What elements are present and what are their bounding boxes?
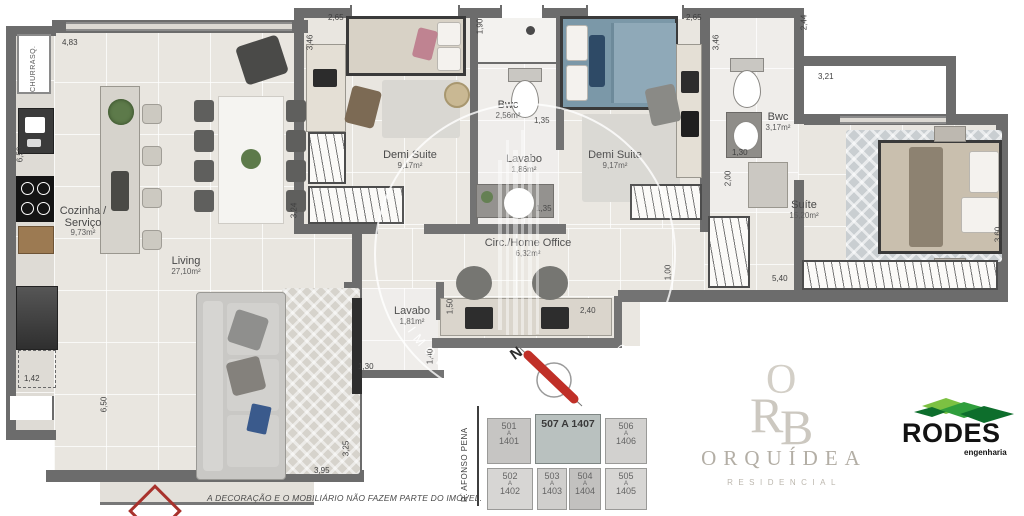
hall-wardrobe (708, 216, 750, 288)
demi1-wardrobe-side (308, 132, 346, 184)
dining-chair (286, 130, 306, 152)
dim-label: 1,35 (534, 116, 550, 125)
rodes-logo: RODES engenharia (902, 398, 1024, 460)
table-plant-icon (241, 149, 261, 169)
room-label-living: Living27,10m² (150, 256, 222, 276)
window-bwc1 (500, 5, 544, 19)
window-service-low (8, 396, 54, 420)
wall-nook-right (614, 296, 622, 348)
watermark-streak (498, 160, 502, 330)
dim-label: 1,00 (663, 265, 672, 281)
wall-demi1-bottom-a (294, 224, 378, 234)
floorplan-canvas: CHURRASQ. (0, 0, 1024, 516)
orquidea-monogram-r: R (750, 386, 783, 444)
dim-label: 3,25 (341, 441, 350, 457)
demi1-wardrobe-bottom (308, 186, 404, 224)
room-label-bwc1: Bwc2,56m² (480, 100, 536, 120)
office-chair (456, 266, 492, 300)
dim-label: 2,65 (328, 13, 344, 22)
watermark-streak (536, 172, 539, 334)
rodes-name: RODES (902, 418, 1001, 449)
fridge (16, 286, 58, 350)
shower-head-icon (526, 26, 535, 35)
dining-chair (286, 160, 306, 182)
dim-label: 1,50 (445, 299, 454, 315)
dim-label: 1,42 (24, 374, 40, 383)
keyplan-unit-502: 502A1402 (487, 468, 533, 510)
dim-label: 2,44 (799, 15, 808, 31)
dim-label: 3,21 (818, 72, 834, 81)
plant-icon (108, 99, 134, 125)
dim-label: 5,40 (772, 274, 788, 283)
compass-n-label: N (507, 343, 526, 363)
watermark-streak (528, 155, 532, 335)
demi1-desk (306, 44, 346, 132)
dim-label: 1,30 (732, 148, 748, 157)
window-suite (840, 116, 946, 124)
island-object (111, 171, 129, 211)
watermark-streak (521, 130, 524, 335)
window-living-top (66, 22, 292, 31)
keyplan-unit-507-highlight: 507 A 1407 (535, 414, 601, 464)
demi1-bed (346, 16, 466, 76)
wall-bwc2-top (700, 8, 802, 18)
suite-nightstand (934, 126, 966, 142)
keyplan-unit-506: 506A1406 (605, 418, 647, 464)
laptop-icon (541, 307, 569, 329)
watermark-streak (513, 150, 518, 335)
wall-bottom-right-long (618, 290, 1008, 302)
dim-label: 2,40 (580, 306, 596, 315)
keyplan-unit-505: 505A1405 (605, 468, 647, 510)
keyplan-street-label: R. AFONSO PENA (460, 427, 469, 502)
orquidea-tagline: RESIDENCIAL (688, 478, 880, 487)
dim-label: 1,30 (358, 362, 374, 371)
room-label-suite: Suíte15,20m² (770, 200, 838, 220)
dim-label: 6,50 (15, 147, 24, 163)
sofa (196, 292, 286, 480)
stool (142, 104, 162, 124)
wall-left-outer (6, 26, 16, 440)
dim-label: 3,46 (711, 35, 720, 51)
dim-label: 4,83 (62, 38, 78, 47)
dim-label: 2,00 (723, 171, 732, 187)
room-label-lavabo2: Lavabo1,81m² (376, 306, 448, 326)
plant-icon (481, 191, 493, 203)
wall-service-bottom (6, 430, 56, 440)
dim-label: 3,95 (314, 466, 330, 475)
wall-void-right (946, 56, 956, 122)
stool (142, 146, 162, 166)
dining-chair (286, 100, 306, 122)
disclaimer-text: A DECORAÇÃO E O MOBILIÁRIO NÃO FAZEM PAR… (207, 493, 482, 503)
laptop-icon (465, 307, 493, 329)
orquidea-logo: O R B ORQUÍDEA RESIDENCIAL (688, 356, 880, 496)
orquidea-name: ORQUÍDEA (688, 446, 880, 471)
room-label-cozinha: Cozinha / Serviço9,73m² (44, 206, 122, 237)
dining-chair (194, 100, 214, 122)
suite-bed (878, 140, 1002, 254)
dim-label: 3,46 (305, 35, 314, 51)
keyplan-unit-503: 503A1403 (537, 468, 567, 510)
dim-label: 2,65 (686, 13, 702, 22)
rodes-tagline: engenharia (964, 448, 1007, 457)
churrasqueira-label: CHURRASQ. (30, 45, 37, 92)
home-office-desk (440, 298, 612, 336)
room-label-demi-suite-1: Demi Suite9,17m² (372, 150, 448, 170)
dim-label: 6,50 (99, 397, 108, 413)
dining-chair (194, 190, 214, 212)
dining-chair (194, 130, 214, 152)
dim-label: 3,60 (993, 227, 1002, 243)
laptop-icon (313, 69, 337, 87)
keyplan-street-line (477, 406, 479, 506)
pouf (444, 82, 470, 108)
bwc2-toilet-bowl (733, 70, 761, 108)
wall-demi1-bottom-b (424, 224, 566, 234)
pink-pillow (412, 27, 439, 61)
watermark-streak (506, 140, 509, 335)
navy-pillow (589, 35, 605, 87)
dim-label: 1,40 (425, 349, 434, 365)
tv-panel (352, 298, 362, 394)
demi2-desk (676, 44, 702, 178)
keyplan-unit-501: 501A1401 (487, 418, 531, 464)
monitor-icon (681, 71, 699, 93)
laptop-icon (681, 111, 699, 137)
room-label-demi-suite-2: Demi Suite9,17m² (577, 150, 653, 170)
compass-icon: N (502, 336, 594, 410)
stool (142, 188, 162, 208)
wall-void-top (794, 56, 956, 66)
dining-chair (194, 160, 214, 182)
keyplan-unit-504: 504A1404 (569, 468, 601, 510)
stool (142, 230, 162, 250)
dining-table (218, 96, 284, 224)
demi2-wardrobe (630, 184, 702, 220)
bwc1-shower (478, 18, 556, 64)
room-label-bwc2: Bwc3,17m² (746, 112, 810, 132)
suite-wardrobe (802, 260, 998, 290)
dim-label: 1,90 (475, 19, 484, 35)
dim-label: 3,24 (289, 203, 298, 219)
